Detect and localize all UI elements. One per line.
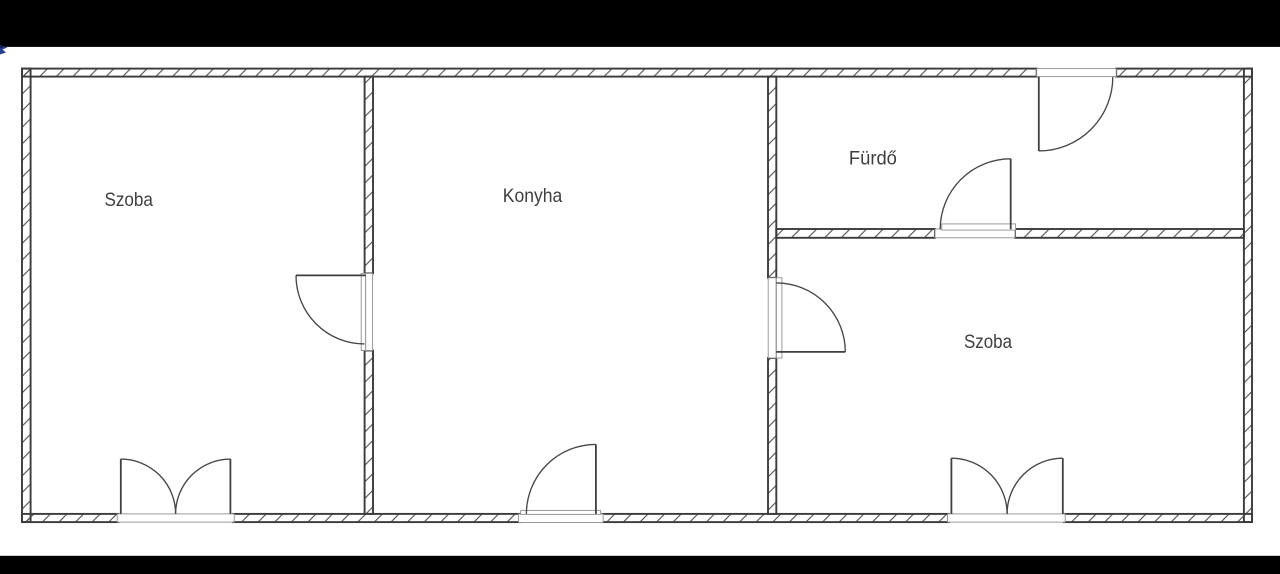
svg-text:Fürdő: Fürdő <box>849 148 897 170</box>
svg-text:Szoba: Szoba <box>964 331 1012 353</box>
svg-text:Szoba: Szoba <box>104 189 153 211</box>
svg-text:Konyha: Konyha <box>503 185 563 207</box>
